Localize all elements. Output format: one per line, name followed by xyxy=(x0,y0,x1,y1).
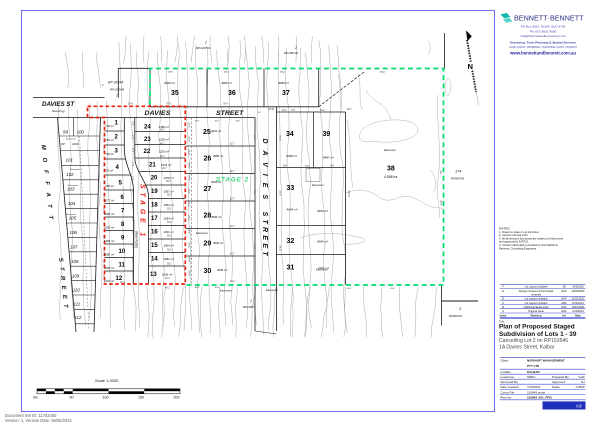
svg-text:8487 m²: 8487 m² xyxy=(323,156,334,160)
svg-text:210849.projid: 210849.projid xyxy=(527,390,546,394)
svg-text:1086 m²: 1086 m² xyxy=(104,266,114,270)
svg-text:(New Road): (New Road) xyxy=(135,231,139,248)
svg-text:(39.6): (39.6) xyxy=(188,242,190,248)
svg-text:50.2: 50.2 xyxy=(167,236,172,238)
svg-text:27: 27 xyxy=(204,186,212,193)
svg-text:RP124791: RP124791 xyxy=(196,46,211,50)
svg-text:109: 109 xyxy=(72,274,80,279)
svg-text:1051 m²: 1051 m² xyxy=(164,257,174,261)
svg-text:Easement: Easement xyxy=(220,289,232,293)
svg-text:25: 25 xyxy=(203,129,211,136)
svg-text:50.2: 50.2 xyxy=(167,264,172,266)
svg-text:Ph: (07) 5631 9000: Ph: (07) 5631 9000 xyxy=(530,29,557,33)
svg-text:0m: 0m xyxy=(33,395,38,399)
svg-text:Partners, Consulting Engineers: Partners, Consulting Engineers. xyxy=(499,246,537,250)
svg-text:49.2: 49.2 xyxy=(165,287,170,290)
svg-text:NORHART MANAGEMENT: NORHART MANAGEMENT xyxy=(527,359,565,363)
svg-text:49.7: 49.7 xyxy=(162,167,167,170)
svg-text:(39.6): (39.6) xyxy=(188,122,190,128)
svg-text:1233 m²: 1233 m² xyxy=(161,163,171,167)
svg-text:Easement: Easement xyxy=(384,148,396,152)
svg-text:(39.6): (39.6) xyxy=(188,256,190,262)
svg-text:62.7: 62.7 xyxy=(230,254,235,256)
svg-text:removed: removed xyxy=(531,293,542,297)
svg-text:JB: JB xyxy=(562,285,565,289)
svg-text:77.8: 77.8 xyxy=(168,72,173,74)
svg-text:107: 107 xyxy=(70,245,78,250)
svg-text:(79.9): (79.9) xyxy=(268,109,274,111)
svg-text:20: 20 xyxy=(151,176,158,182)
svg-text:(39.6): (39.6) xyxy=(188,162,190,168)
svg-text:4000 m²: 4000 m² xyxy=(213,241,223,245)
svg-text:(39.6): (39.6) xyxy=(188,201,190,207)
svg-text:Lot Layout Updated: Lot Layout Updated xyxy=(525,301,548,305)
svg-text:36: 36 xyxy=(228,90,236,97)
svg-text:Easement: Easement xyxy=(66,138,76,141)
svg-text:Approved:: Approved: xyxy=(552,380,566,384)
svg-text:31: 31 xyxy=(287,265,295,272)
svg-text:(39.6): (39.6) xyxy=(188,175,190,181)
svg-text:PTY LTD: PTY LTD xyxy=(527,364,540,368)
svg-text:DAVIES ST: DAVIES ST xyxy=(42,101,75,108)
svg-text:Surveyed By:: Surveyed By: xyxy=(501,380,519,384)
svg-text:78.4: 78.4 xyxy=(223,103,228,106)
svg-text:21: 21 xyxy=(149,163,156,169)
svg-text:STAGE 1: STAGE 1 xyxy=(139,184,146,240)
svg-text:4000 m²: 4000 m² xyxy=(164,81,175,85)
svg-text:4008 m²: 4008 m² xyxy=(286,154,297,158)
svg-text:4000 m²: 4000 m² xyxy=(317,240,328,244)
svg-text:1A Davies Street, Kalbar: 1A Davies Street, Kalbar xyxy=(499,344,555,350)
svg-text:RP168732: RP168732 xyxy=(284,51,299,55)
svg-text:Easement: Easement xyxy=(312,183,324,187)
svg-text:6/12/2021: 6/12/2021 xyxy=(572,301,584,305)
svg-text:33: 33 xyxy=(287,185,295,192)
svg-text:15: 15 xyxy=(151,243,158,249)
svg-text:RP909724: RP909724 xyxy=(449,314,463,318)
svg-text:RP: RP xyxy=(61,142,65,146)
svg-text:Scale:: Scale: xyxy=(552,385,561,389)
svg-text:Client:: Client: xyxy=(501,359,510,363)
svg-text:2: 2 xyxy=(115,94,118,98)
svg-text:1077 m²: 1077 m² xyxy=(104,198,114,202)
svg-text:106: 106 xyxy=(70,230,78,235)
svg-text:C: C xyxy=(502,301,504,305)
svg-text:1054 m²: 1054 m² xyxy=(164,244,174,248)
svg-text:Plan No:: Plan No: xyxy=(501,396,513,400)
svg-text:78.2: 78.2 xyxy=(280,72,285,74)
svg-text:1001 m²: 1001 m² xyxy=(164,230,174,234)
svg-text:200: 200 xyxy=(174,395,180,399)
svg-text:4005 m²: 4005 m² xyxy=(211,215,221,219)
svg-text:103: 103 xyxy=(67,187,75,192)
svg-text:13/10/2021: 13/10/2021 xyxy=(572,305,586,309)
svg-text:19: 19 xyxy=(151,189,158,195)
svg-text:Int: Int xyxy=(562,314,565,318)
svg-text:Plan of Proposed Staged: Plan of Proposed Staged xyxy=(499,324,575,331)
svg-text:(39.6): (39.6) xyxy=(188,149,190,155)
svg-text:14: 14 xyxy=(151,257,158,263)
svg-text:2: 2 xyxy=(249,299,252,303)
svg-text:RP2465: RP2465 xyxy=(243,305,254,309)
svg-text:32: 32 xyxy=(287,238,295,245)
svg-text:2: 2 xyxy=(204,41,207,45)
svg-text:Easement: Easement xyxy=(316,268,328,272)
svg-text:Version: 1, Version Date: 06/0: Version: 1, Version Date: 06/05/2022 xyxy=(5,418,72,423)
svg-text:Additional Easements: Additional Easements xyxy=(523,305,549,309)
svg-text:Easement: Easement xyxy=(266,288,278,292)
svg-text:100: 100 xyxy=(77,130,85,135)
svg-text:1255 m²: 1255 m² xyxy=(159,137,169,141)
svg-text:1057 m²: 1057 m² xyxy=(164,190,174,194)
svg-text:62.7: 62.7 xyxy=(230,199,235,201)
svg-text:(50.4): (50.4) xyxy=(278,135,281,141)
svg-text:1385 m²: 1385 m² xyxy=(159,125,169,129)
svg-text:DAF: DAF xyxy=(561,305,567,309)
svg-text:50.0: 50.0 xyxy=(166,181,171,183)
svg-text:4.548 ha: 4.548 ha xyxy=(384,175,397,179)
svg-text:(39.6): (39.6) xyxy=(188,188,190,194)
svg-text:304.8: 304.8 xyxy=(440,200,443,206)
svg-text:Lot Layout Updated: Lot Layout Updated xyxy=(525,297,548,301)
svg-text:Lot Layout Updated: Lot Layout Updated xyxy=(525,285,548,289)
svg-text:50.2: 50.2 xyxy=(167,209,172,211)
svg-text:63.2: 63.2 xyxy=(320,110,325,112)
svg-text:RP909724: RP909724 xyxy=(451,177,465,181)
svg-text:Date Created:: Date Created: xyxy=(501,385,520,389)
svg-text:17: 17 xyxy=(151,216,158,222)
svg-text:49.7: 49.7 xyxy=(160,129,165,132)
svg-text:Easement: Easement xyxy=(196,231,208,235)
svg-text:A: A xyxy=(502,309,504,313)
svg-text:Locality:: Locality: xyxy=(501,370,512,374)
svg-text:Date: Date xyxy=(575,314,581,318)
svg-text:18: 18 xyxy=(151,203,158,209)
svg-text:110: 110 xyxy=(73,288,81,293)
svg-text:(304.8): (304.8) xyxy=(348,190,351,197)
svg-text:10: 10 xyxy=(119,249,126,255)
svg-text:174: 174 xyxy=(455,170,461,174)
svg-text:4045 m²: 4045 m² xyxy=(217,268,227,272)
svg-text:21/02/2022: 21/02/2022 xyxy=(572,297,586,301)
svg-text:mail@bennettandbennett.com.au: mail@bennettandbennett.com.au xyxy=(520,34,566,38)
svg-text:62.7: 62.7 xyxy=(230,144,235,146)
svg-text:4/05/2022: 4/05/2022 xyxy=(572,285,584,289)
svg-text:1083 m²: 1083 m² xyxy=(104,239,114,243)
svg-text:GvR: GvR xyxy=(579,375,586,379)
svg-text:Comp File:: Comp File: xyxy=(501,390,516,394)
svg-text:150: 150 xyxy=(138,395,144,399)
svg-text:2: 2 xyxy=(294,46,297,50)
svg-text:104: 104 xyxy=(68,201,76,206)
svg-text:Original Issue: Original Issue xyxy=(528,309,544,313)
svg-text:1:2000: 1:2000 xyxy=(575,385,585,389)
svg-text:62.7: 62.7 xyxy=(230,171,235,173)
svg-text:1022 m²: 1022 m² xyxy=(104,279,114,283)
svg-text:4085 m²: 4085 m² xyxy=(213,154,223,158)
svg-text:RP153546: RP153546 xyxy=(110,88,125,92)
svg-text:26: 26 xyxy=(204,156,212,163)
svg-text:22: 22 xyxy=(144,149,151,155)
svg-text:49.2: 49.2 xyxy=(165,277,170,280)
svg-text:1054 m²: 1054 m² xyxy=(164,203,174,207)
svg-text:62.7: 62.7 xyxy=(230,226,235,228)
svg-text:B: B xyxy=(502,305,504,309)
svg-text:(39.6): (39.6) xyxy=(188,136,190,142)
svg-text:37: 37 xyxy=(282,90,290,97)
svg-text:752 m²: 752 m² xyxy=(105,138,114,142)
svg-text:39.4: 39.4 xyxy=(128,103,133,106)
svg-text:JH: JH xyxy=(581,380,585,384)
svg-text:Design contours & flood detail: Design contours & flood detail xyxy=(519,289,554,293)
svg-text:1/10/2021: 1/10/2021 xyxy=(572,309,584,313)
svg-text:4001 m²: 4001 m² xyxy=(211,129,221,133)
svg-text:100: 100 xyxy=(103,395,109,399)
svg-text:DAF: DAF xyxy=(561,297,567,301)
svg-text:101: 101 xyxy=(66,158,74,163)
svg-text:38: 38 xyxy=(387,166,395,173)
svg-text:Local Gov:: Local Gov: xyxy=(501,375,516,379)
svg-text:49.2: 49.2 xyxy=(230,280,235,283)
svg-text:105: 105 xyxy=(69,216,77,221)
svg-text:(50.4): (50.4) xyxy=(278,245,281,251)
svg-text:1078 m²: 1078 m² xyxy=(164,176,174,180)
svg-text:4080 m²: 4080 m² xyxy=(221,81,232,85)
svg-text:16: 16 xyxy=(151,230,158,236)
svg-text:RP 26344: RP 26344 xyxy=(108,81,123,85)
svg-text:N: N xyxy=(468,62,473,71)
svg-text:50.2: 50.2 xyxy=(167,250,172,252)
svg-text:77.8: 77.8 xyxy=(166,104,171,106)
svg-text:Prepared By:: Prepared By: xyxy=(552,375,570,379)
svg-text:1082 m²: 1082 m² xyxy=(104,212,114,216)
svg-text:23/03/2022: 23/03/2022 xyxy=(572,289,586,293)
svg-text:1083 m²: 1083 m² xyxy=(104,252,114,256)
svg-text:24: 24 xyxy=(144,125,151,131)
svg-text:Easement: Easement xyxy=(66,213,76,216)
svg-text:DAF: DAF xyxy=(561,309,567,313)
svg-text:Revision: Revision xyxy=(531,314,542,318)
svg-text:29: 29 xyxy=(204,241,212,248)
svg-text:(39.6): (39.6) xyxy=(188,228,190,234)
svg-text:Easement: Easement xyxy=(68,184,78,187)
svg-text:30: 30 xyxy=(204,268,212,275)
svg-text:SRRC: SRRC xyxy=(527,375,536,379)
svg-text:(39.6): (39.6) xyxy=(188,270,190,276)
svg-text:69.7: 69.7 xyxy=(347,109,352,111)
svg-text:23: 23 xyxy=(144,137,151,143)
svg-text:1005 m²: 1005 m² xyxy=(162,273,172,277)
svg-text:DAVIES: DAVIES xyxy=(261,139,268,207)
svg-text:32.4: 32.4 xyxy=(120,281,125,284)
svg-text:PO Box 5621, GCMC QLD 9726: PO Box 5621, GCMC QLD 9726 xyxy=(521,25,566,29)
svg-text:13: 13 xyxy=(150,272,157,278)
svg-text:43.4: 43.4 xyxy=(282,109,287,112)
svg-text:108: 108 xyxy=(71,259,79,264)
svg-text:1252 m²: 1252 m² xyxy=(159,150,169,154)
svg-text:Scale 1:2000: Scale 1:2000 xyxy=(95,378,119,383)
svg-text:E: E xyxy=(502,289,504,293)
svg-text:112: 112 xyxy=(74,315,82,320)
svg-text:Easement: Easement xyxy=(70,168,80,171)
svg-text:50: 50 xyxy=(70,395,74,399)
svg-text:KALBAR: KALBAR xyxy=(527,370,540,374)
svg-text:D: D xyxy=(502,297,504,301)
svg-text:50.2: 50.2 xyxy=(167,222,172,224)
svg-text:STREET: STREET xyxy=(261,212,268,259)
svg-text:956 m²: 956 m² xyxy=(105,184,114,188)
svg-text:4004 m²: 4004 m² xyxy=(287,208,298,212)
svg-text:A3: A3 xyxy=(576,404,582,409)
svg-text:www.bennettandbennett.com.au: www.bennettandbennett.com.au xyxy=(509,50,576,55)
svg-text:Subdivision of Lots 1 - 39: Subdivision of Lots 1 - 39 xyxy=(499,331,577,338)
svg-text:99: 99 xyxy=(63,130,68,135)
svg-text:78.0: 78.0 xyxy=(380,72,385,74)
svg-text:750 m²: 750 m² xyxy=(105,152,114,156)
svg-text:1082 m²: 1082 m² xyxy=(104,226,114,230)
svg-text:ARS: ARS xyxy=(561,301,567,305)
svg-text:2404: 2404 xyxy=(71,142,79,146)
svg-text:11: 11 xyxy=(119,263,126,269)
svg-text:4005 m²: 4005 m² xyxy=(211,180,221,184)
svg-text:Surveying, Town Planning & Spa: Surveying, Town Planning & Spatial Servi… xyxy=(510,40,576,44)
svg-text:Cancelling Lot 2 on RP153546: Cancelling Lot 2 on RP153546 xyxy=(499,338,568,344)
svg-text:DAF: DAF xyxy=(561,289,567,293)
svg-text:(Existing): (Existing) xyxy=(52,109,65,113)
svg-text:792 m²: 792 m² xyxy=(105,169,114,173)
svg-text:STREET: STREET xyxy=(216,110,244,117)
svg-text:1054 m²: 1054 m² xyxy=(164,217,174,221)
svg-text:49.7: 49.7 xyxy=(160,143,165,146)
svg-text:49.7: 49.7 xyxy=(160,155,165,158)
svg-text:Issue: Issue xyxy=(500,314,507,318)
svg-text:4080 m²: 4080 m² xyxy=(278,81,289,85)
svg-text:4000 m²: 4000 m² xyxy=(317,209,328,213)
svg-text:NOTES:: NOTES: xyxy=(499,226,510,230)
svg-text:102: 102 xyxy=(66,172,74,177)
svg-text:(50.4): (50.4) xyxy=(278,190,281,196)
svg-text:111: 111 xyxy=(74,302,81,307)
svg-text:34: 34 xyxy=(286,131,294,138)
svg-text:(39.6): (39.6) xyxy=(188,215,190,221)
svg-text:736 m²: 736 m² xyxy=(105,124,114,128)
svg-text:39: 39 xyxy=(323,131,331,138)
svg-text:210849_001_PRO: 210849_001_PRO xyxy=(527,396,553,400)
svg-text:BENNETT·BENNETT: BENNETT·BENNETT xyxy=(514,13,584,22)
svg-text:78.4: 78.4 xyxy=(224,71,229,74)
svg-text:35: 35 xyxy=(171,90,179,97)
svg-text:GOLD COAST | BRISBANE | SUNSHI: GOLD COAST | BRISBANE | SUNSHINE COAST |… xyxy=(509,46,577,49)
svg-text:50.2: 50.2 xyxy=(167,195,172,197)
svg-text:DAVIES: DAVIES xyxy=(145,110,171,117)
svg-text:7/10/2021: 7/10/2021 xyxy=(527,385,541,389)
